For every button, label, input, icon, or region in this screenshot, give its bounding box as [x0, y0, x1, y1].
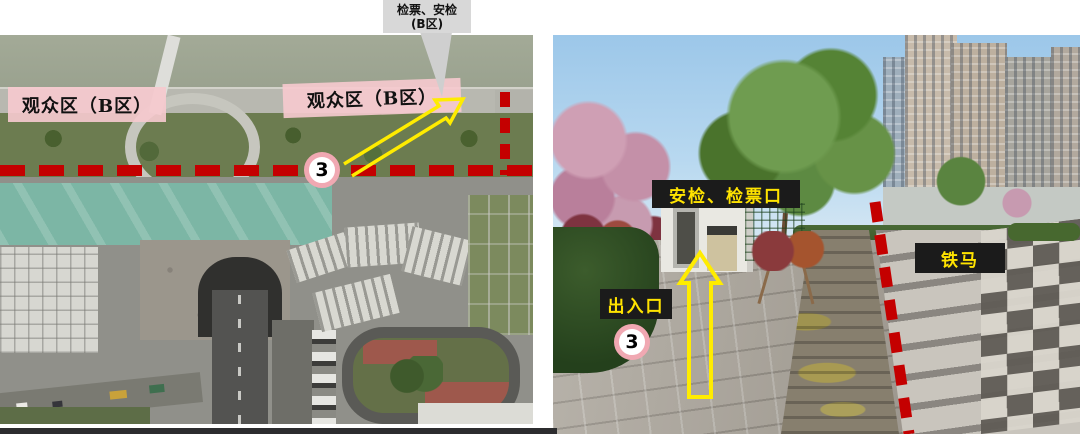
bushes-far-right — [1008, 223, 1080, 241]
stage-area-highlight — [0, 183, 332, 245]
apartment-complex — [288, 207, 468, 337]
audience-zone-b-text: 观众区（B区） — [22, 92, 152, 118]
courtyard-gardens — [468, 195, 533, 335]
crowd-barrier-label: 铁马 — [915, 243, 1005, 273]
bottom-edge-bar — [0, 428, 557, 434]
audience-zone-b-label-right: 观众区（B区） — [282, 78, 461, 118]
callout-text-line2: (B区) — [411, 17, 443, 31]
parked-car-strip — [312, 330, 336, 424]
security-checkpoint-label: 安检、检票口 — [652, 180, 800, 208]
entrance-guide-figure: 观众区（B区） 观众区（B区） 3 检票、安检 (B区) — [0, 0, 1080, 434]
boundary-dashed-line-vertical — [500, 92, 510, 175]
white-building-block — [0, 247, 98, 353]
apartment-tower — [1051, 47, 1080, 199]
blossom-tree-right — [993, 183, 1041, 223]
callout-text-line1: 检票、安检 — [397, 3, 457, 17]
entrance-exit-label: 出入口 — [600, 289, 672, 319]
truck — [149, 384, 165, 394]
apartment-tower — [1005, 57, 1055, 199]
xray-machine — [707, 226, 737, 271]
courtyard-trees — [383, 356, 443, 396]
red-shrubs — [749, 231, 829, 271]
entrance-exit-text: 出入口 — [608, 292, 665, 317]
checkpoint-callout: 检票、安检 (B区) — [383, 0, 471, 33]
audience-zone-b-text: 观众区（B区） — [306, 83, 437, 114]
security-gate-building — [661, 200, 753, 272]
road-lane-dashes — [238, 295, 241, 424]
metal-detector-gate — [673, 208, 699, 268]
crowd-barrier-text: 铁马 — [941, 246, 979, 271]
gate-3-badge-street: 3 — [614, 324, 650, 360]
aerial-map-photo: 观众区（B区） 观众区（B区） 3 — [0, 35, 533, 424]
gate-number: 3 — [315, 161, 328, 180]
audience-zone-b-label-left: 观众区（B区） — [8, 87, 166, 122]
greenery-bottom-left — [0, 407, 150, 424]
security-checkpoint-text: 安检、检票口 — [669, 182, 783, 207]
boundary-dashed-line-horizontal — [0, 165, 533, 176]
street-photo: 安检、检票口 出入口 铁马 3 — [553, 35, 1080, 434]
bus — [109, 390, 127, 400]
street-tree-right — [930, 147, 992, 223]
white-building-bottom-right — [418, 403, 533, 424]
gate-number: 3 — [625, 333, 638, 352]
gate-3-badge-aerial: 3 — [304, 152, 340, 188]
